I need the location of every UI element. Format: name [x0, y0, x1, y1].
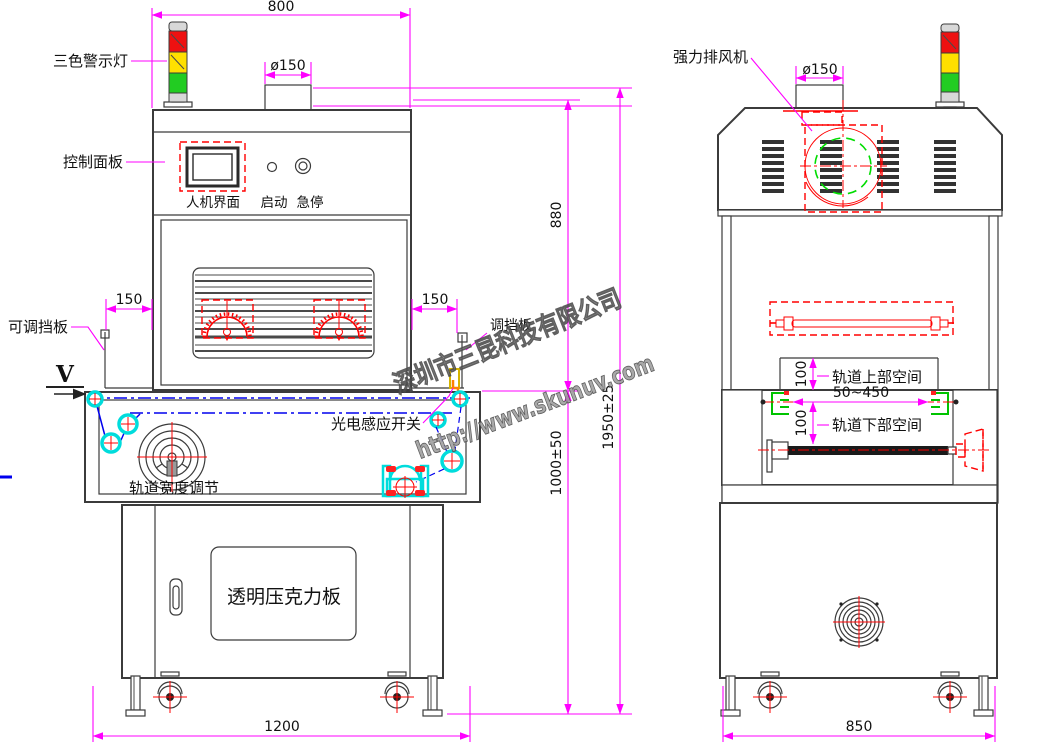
dim-dia150-side-text: ø150	[802, 62, 837, 78]
door-handle-icon	[170, 579, 182, 615]
dim-1000-text: 1000±50	[549, 430, 565, 495]
tricolor-warning-light-icon	[164, 22, 192, 107]
dim-1200-text: 1200	[264, 719, 300, 735]
dim-100u-text: 100	[794, 361, 810, 388]
base-cabinet-side	[720, 503, 997, 678]
adjustable-baffle-label: 可调挡板	[8, 318, 68, 336]
dim-100l-text: 100	[794, 410, 810, 437]
cad-drawing: 人机界面 启动 急停	[0, 0, 1058, 745]
dim-1000: 1000±50	[549, 391, 568, 714]
watermark: 深圳市三昆科技有限公司 http://www.skunuv.com	[389, 283, 658, 465]
tricolor-warning-light-icon	[936, 24, 964, 110]
dim-dia150-front: ø150	[265, 58, 311, 84]
warning-light-label: 三色警示灯	[53, 52, 128, 70]
estop-label: 急停	[297, 194, 324, 211]
infeed-tray	[101, 330, 153, 388]
control-panel-label: 控制面板	[63, 153, 123, 171]
leveling-foot	[974, 676, 993, 716]
dim-880-text: 880	[549, 202, 565, 229]
dim-dia150-front-text: ø150	[270, 58, 305, 74]
exhaust-chimney-side	[796, 85, 843, 108]
dim-150r-text: 150	[422, 292, 449, 308]
acrylic-label: 透明压克力板	[227, 586, 341, 608]
dim-100-upper: 100	[794, 358, 829, 390]
upper-space-label: 轨道上部空间	[832, 368, 922, 386]
cad-sheet: 人机界面 启动 急停	[0, 0, 1058, 745]
dim-850-text: 850	[846, 719, 873, 735]
exhaust-chimney-front	[265, 85, 311, 110]
conveyor-table-side	[722, 390, 997, 503]
photo-sensor-label: 光电感应开关	[331, 415, 421, 433]
dim-150-left: 150	[106, 292, 152, 330]
view-v-label: V	[55, 361, 75, 388]
track-width-label: 轨道宽度调节	[129, 479, 219, 497]
dim-150-right: 150	[412, 292, 457, 333]
dim-range-text: 50~450	[833, 385, 889, 401]
base-cabinet: 透明压克力板	[122, 505, 443, 678]
dim-150l-text: 150	[116, 292, 143, 308]
view-marker: V	[46, 361, 86, 394]
lower-space-label: 轨道下部空间	[832, 416, 922, 434]
leveling-foot	[126, 676, 145, 716]
dim-1200: 1200	[93, 686, 470, 742]
uv-lamp-tube-icon	[770, 302, 954, 335]
exhaust-fan-label: 强力排风机	[673, 48, 748, 66]
hmi-label: 人机界面	[186, 195, 240, 211]
cooling-fan-grille-icon	[833, 596, 885, 648]
leveling-foot	[423, 676, 442, 716]
dim-800-text: 800	[268, 0, 295, 15]
leveling-foot	[721, 676, 740, 716]
dim-dia150-side: ø150	[796, 62, 843, 84]
start-label: 启动	[261, 195, 288, 211]
start-button-icon	[268, 163, 277, 172]
